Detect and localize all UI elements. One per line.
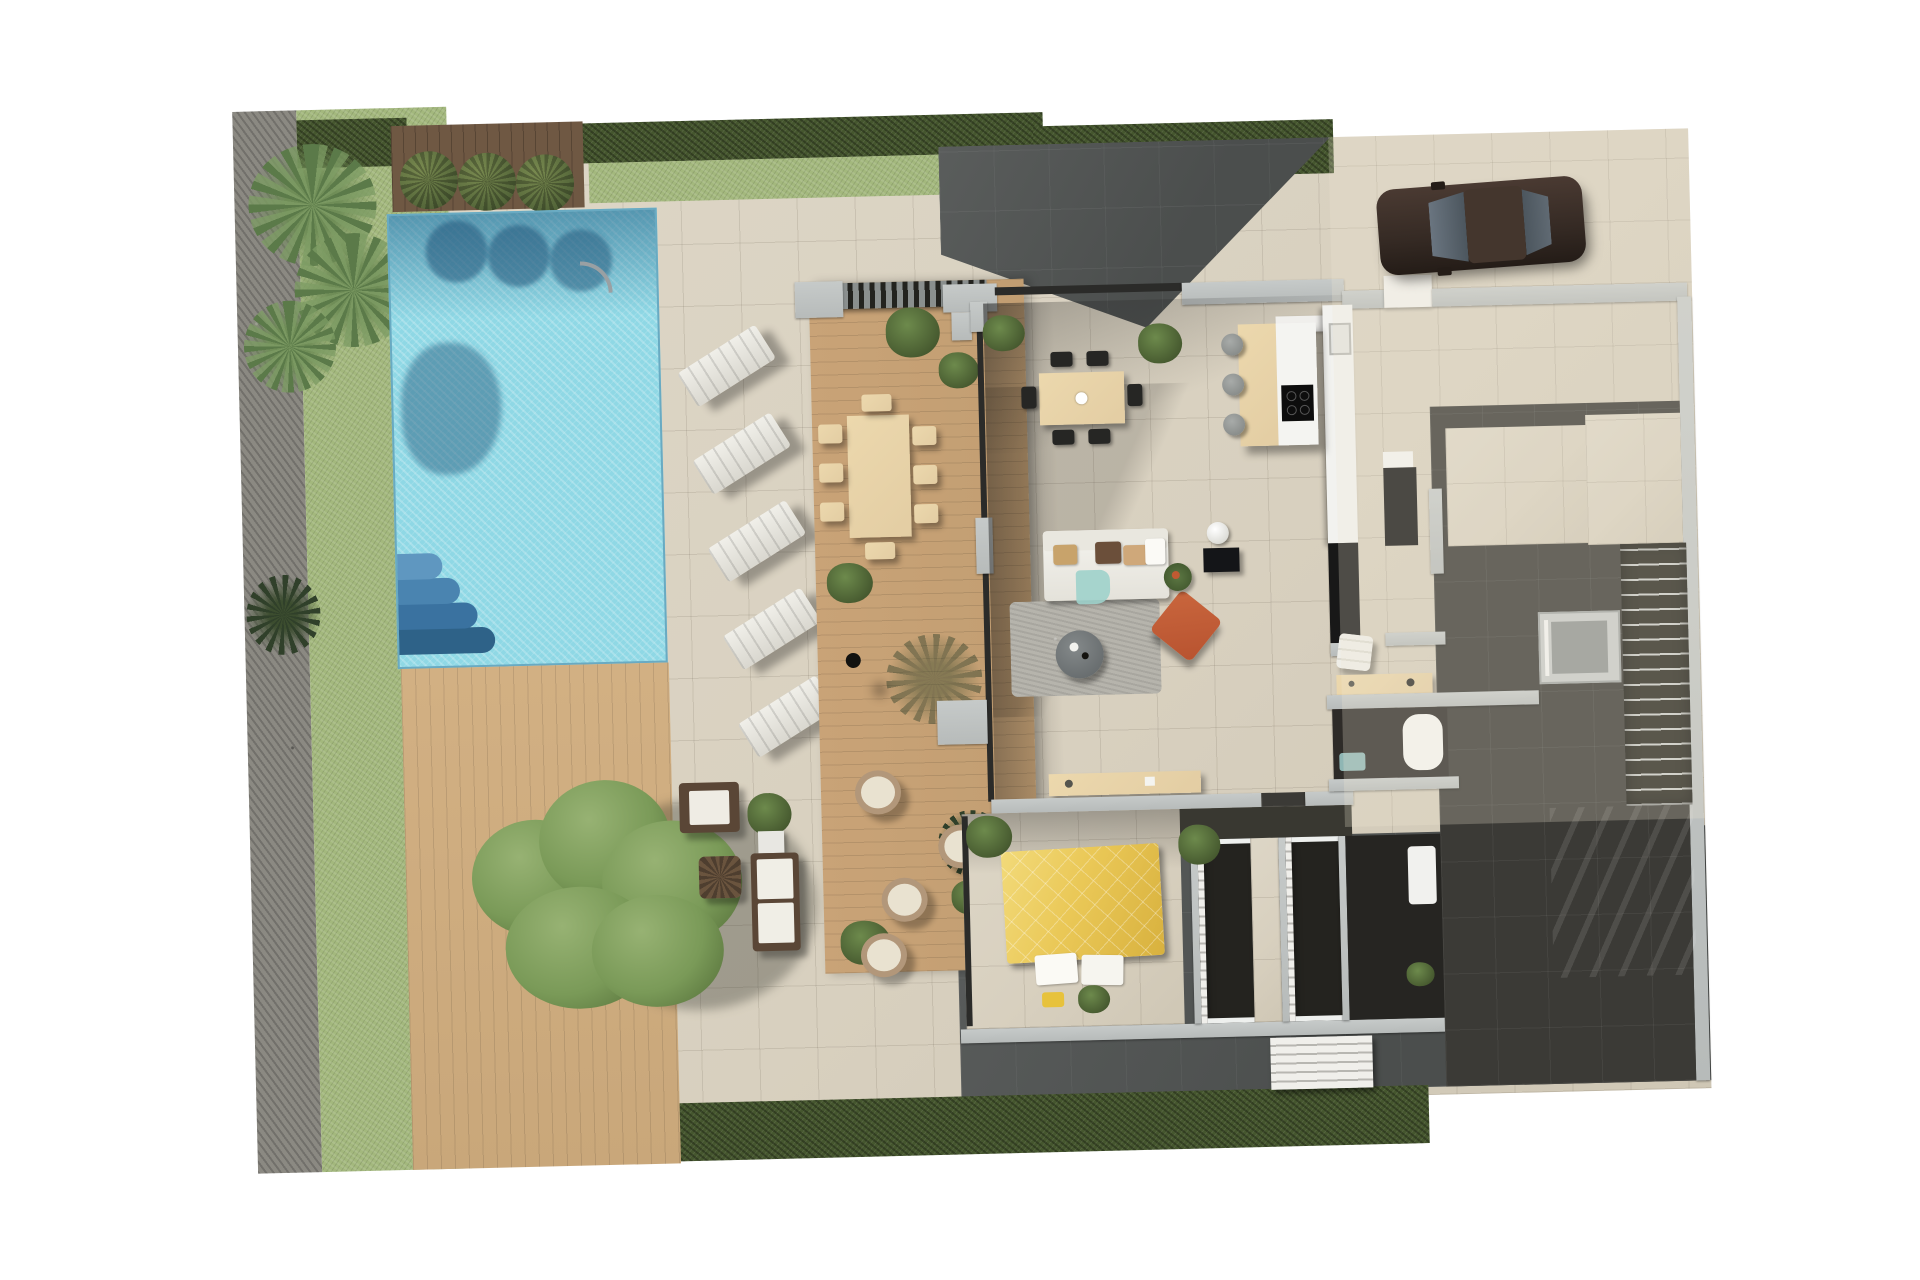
car-mirror xyxy=(1431,181,1446,190)
bed-throw-yellow xyxy=(1042,992,1064,1008)
planter-box xyxy=(758,831,785,854)
ensuite-bathroom xyxy=(1345,834,1449,1020)
double-bed xyxy=(1001,843,1165,964)
car xyxy=(1375,175,1591,283)
wicker-coffee-table xyxy=(699,856,742,899)
dining-chair xyxy=(861,394,891,412)
dining-chair xyxy=(820,502,844,522)
bed-pillow xyxy=(1081,955,1123,985)
floor-lamp xyxy=(1201,521,1246,574)
bedroom-door-gap xyxy=(1261,792,1305,807)
wall-pier xyxy=(937,700,988,745)
outdoor-armchair xyxy=(679,782,740,833)
kitchen-island xyxy=(1238,323,1319,447)
stair-shadow xyxy=(1550,804,1697,977)
dining-chair xyxy=(819,463,843,483)
bathroom-fixture xyxy=(1407,846,1436,905)
bathroom-plant xyxy=(1406,962,1435,987)
villa-site-plan xyxy=(232,70,1716,1183)
staircase-exterior xyxy=(1270,1035,1373,1089)
dining-chair xyxy=(865,542,895,560)
pool-steps xyxy=(397,552,500,667)
bed-pillow xyxy=(1034,953,1078,986)
dining-chair-black xyxy=(1052,429,1074,445)
floorplan-page xyxy=(0,0,1920,1280)
dining-chair xyxy=(912,426,936,446)
wall-pier xyxy=(951,312,972,340)
wall-pier xyxy=(795,281,844,318)
sofa xyxy=(1043,528,1170,601)
teal-throw xyxy=(1076,570,1111,605)
dining-chair xyxy=(913,465,937,485)
dining-chair-black xyxy=(1021,386,1037,408)
cooktop-icon xyxy=(1281,385,1314,422)
closet-gap-floor xyxy=(1250,838,1282,1023)
dining-chair-black xyxy=(1127,384,1143,406)
indoor-dining-table xyxy=(1039,371,1125,425)
outdoor-l-sofa xyxy=(750,852,800,951)
dining-chair-black xyxy=(1088,429,1110,445)
dining-chair xyxy=(914,504,938,524)
car-mirror xyxy=(1437,267,1452,276)
walk-in-closet xyxy=(1197,838,1254,1023)
car-roof xyxy=(1463,185,1527,263)
car-rear-window xyxy=(1522,187,1553,255)
outdoor-dining-table xyxy=(847,415,912,538)
dining-chair-black xyxy=(1050,352,1072,368)
dining-chair-black xyxy=(1086,351,1108,367)
swimming-pool xyxy=(387,208,668,669)
palm-reflection xyxy=(400,341,503,475)
car-windshield xyxy=(1428,192,1469,265)
walk-in-closet xyxy=(1285,836,1342,1021)
dining-chair xyxy=(818,424,842,444)
desk-sideboard xyxy=(1049,771,1201,797)
